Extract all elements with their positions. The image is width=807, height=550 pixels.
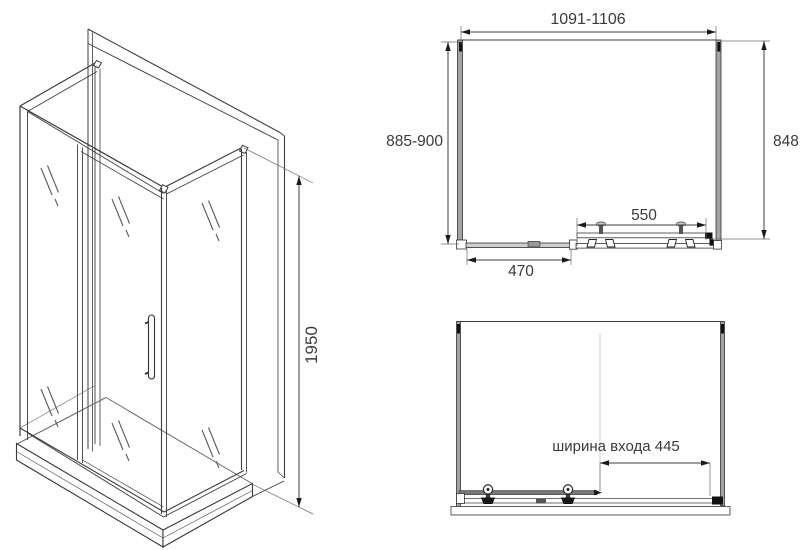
dimension-depth: 885-900 <box>386 42 459 244</box>
fixed-panel-label: 470 <box>508 263 534 280</box>
back-wall-panel <box>88 29 285 478</box>
isometric-view: 1950 <box>17 29 322 547</box>
arrow-up-icon <box>296 176 301 185</box>
arrow-right-icon <box>697 222 706 227</box>
dimension-entry-width: ширина входа 445 <box>552 438 710 496</box>
side-height-label: 848 <box>773 133 799 150</box>
arrow-left-icon <box>600 460 609 465</box>
dimension-side-height: 848 <box>711 41 799 239</box>
arrow-right-icon <box>562 257 571 262</box>
arrow-left-icon <box>467 257 476 262</box>
depth-label: 885-900 <box>386 133 443 150</box>
fixed-panel-bottom <box>457 240 578 249</box>
door-handle <box>145 315 155 379</box>
bottom-track-assembly <box>451 485 730 515</box>
glass-reflection-marks <box>41 166 220 469</box>
entry-width-label: ширина входа 445 <box>552 438 680 455</box>
wall-anchor-right <box>721 324 724 334</box>
arrow-down-icon <box>761 230 766 239</box>
technical-drawing: 1950 1091-110 <box>0 0 807 550</box>
dimension-overall-width: 1091-1106 <box>461 11 716 44</box>
arrow-down-icon <box>445 235 450 244</box>
arrow-up-icon <box>445 42 450 51</box>
arrow-left-icon <box>577 222 586 227</box>
dimension-height-1950: 1950 <box>244 148 321 514</box>
left-wall-profile <box>458 40 463 240</box>
track-clamp <box>536 499 546 504</box>
arrow-right-icon <box>701 460 710 465</box>
door-panel <box>577 233 709 238</box>
shower-tray <box>17 444 285 548</box>
left-glass-panel <box>20 61 102 447</box>
dimension-fixed-panel: 470 <box>467 249 571 280</box>
right-wall-profile <box>716 40 721 243</box>
wall-anchor-right <box>717 42 720 52</box>
front-view: ширина входа 445 <box>451 322 730 516</box>
overall-width-label: 1091-1106 <box>550 11 625 28</box>
arrow-right-icon <box>707 29 716 34</box>
top-view: 1091-1106 885-900 848 550 <box>386 11 799 280</box>
base-profile <box>451 507 730 516</box>
door-bottom-rail <box>459 491 597 495</box>
right-glass-panel <box>164 145 249 517</box>
arrow-right-icon <box>594 490 602 496</box>
right-wall-profile <box>721 322 725 506</box>
panel-clamp <box>528 241 540 246</box>
door-dim-label: 550 <box>631 207 657 224</box>
height-dim-label: 1950 <box>302 326 321 364</box>
wall-anchor-left <box>459 42 462 52</box>
wall-anchor-left <box>457 324 460 334</box>
front-glass-door <box>20 106 168 517</box>
left-wall-profile <box>457 322 461 508</box>
arrow-up-icon <box>761 41 766 50</box>
corner-bracket <box>712 497 723 505</box>
arrow-left-icon <box>461 29 470 34</box>
arrow-down-icon <box>296 498 301 507</box>
